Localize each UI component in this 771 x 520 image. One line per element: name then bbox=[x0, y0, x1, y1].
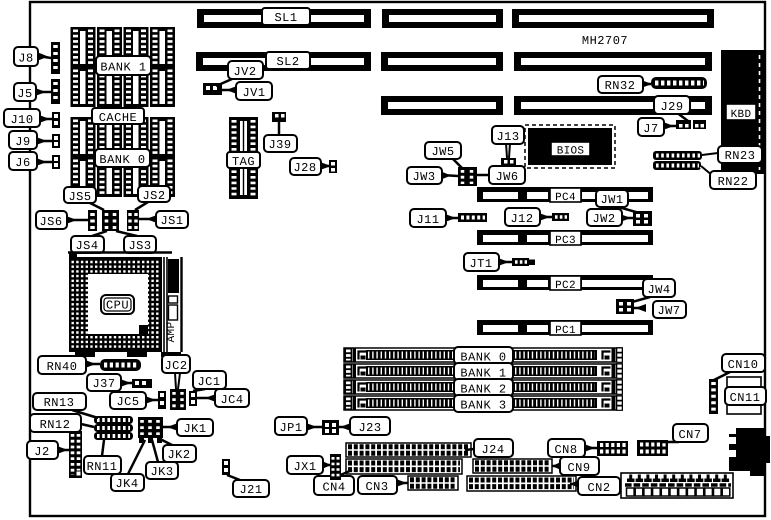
svg-text:J13: J13 bbox=[496, 130, 519, 144]
svg-text:J7: J7 bbox=[643, 122, 658, 136]
svg-text:BANK 1: BANK 1 bbox=[100, 61, 146, 75]
svg-text:JW2: JW2 bbox=[592, 212, 615, 226]
svg-text:JV2: JV2 bbox=[233, 65, 256, 79]
svg-text:J11: J11 bbox=[416, 213, 439, 227]
svg-text:KBD: KBD bbox=[731, 109, 752, 121]
svg-text:JX1: JX1 bbox=[293, 460, 316, 474]
svg-text:PC2: PC2 bbox=[555, 280, 576, 292]
svg-text:J24: J24 bbox=[481, 443, 504, 457]
svg-text:J10: J10 bbox=[10, 113, 33, 127]
svg-text:RN13: RN13 bbox=[44, 396, 75, 410]
svg-text:JK2: JK2 bbox=[167, 448, 190, 462]
svg-text:RN23: RN23 bbox=[725, 149, 756, 163]
svg-text:JW3: JW3 bbox=[412, 170, 435, 184]
svg-text:CN4: CN4 bbox=[322, 481, 345, 495]
svg-text:J2: J2 bbox=[34, 445, 49, 459]
svg-text:J39: J39 bbox=[268, 138, 291, 152]
svg-text:PC1: PC1 bbox=[555, 325, 576, 337]
svg-text:J9: J9 bbox=[15, 135, 30, 149]
svg-text:JK1: JK1 bbox=[183, 422, 206, 436]
svg-text:CN10: CN10 bbox=[728, 358, 759, 372]
svg-text:CN2: CN2 bbox=[587, 481, 610, 495]
svg-text:RN12: RN12 bbox=[40, 418, 71, 432]
svg-text:JV1: JV1 bbox=[242, 86, 265, 100]
svg-text:RN40: RN40 bbox=[47, 360, 78, 374]
svg-text:JS6: JS6 bbox=[39, 215, 62, 229]
svg-text:JW7: JW7 bbox=[657, 304, 680, 318]
svg-text:SL2: SL2 bbox=[276, 55, 299, 69]
svg-text:JP1: JP1 bbox=[279, 421, 302, 435]
svg-text:JC4: JC4 bbox=[220, 393, 243, 407]
svg-text:JW6: JW6 bbox=[495, 170, 518, 184]
svg-text:JS3: JS3 bbox=[128, 239, 151, 253]
svg-text:SL1: SL1 bbox=[274, 11, 297, 25]
svg-text:JS1: JS1 bbox=[160, 214, 183, 228]
svg-text:J29: J29 bbox=[660, 100, 683, 114]
svg-text:J23: J23 bbox=[358, 421, 381, 435]
svg-text:J21: J21 bbox=[239, 483, 262, 497]
svg-text:JC1: JC1 bbox=[197, 375, 220, 389]
svg-text:TAG: TAG bbox=[232, 155, 255, 169]
svg-text:JW1: JW1 bbox=[600, 193, 623, 207]
svg-text:JS2: JS2 bbox=[142, 189, 165, 203]
svg-text:J37: J37 bbox=[92, 377, 115, 391]
svg-text:CN3: CN3 bbox=[365, 480, 388, 494]
svg-text:JC5: JC5 bbox=[116, 395, 139, 409]
svg-text:CN9: CN9 bbox=[567, 461, 590, 475]
svg-text:CN7: CN7 bbox=[678, 428, 701, 442]
svg-text:JS5: JS5 bbox=[68, 190, 91, 204]
svg-text:AMP: AMP bbox=[166, 322, 178, 343]
svg-text:RN32: RN32 bbox=[605, 79, 636, 93]
svg-text:CN8: CN8 bbox=[554, 443, 577, 457]
svg-text:JK4: JK4 bbox=[115, 477, 138, 491]
svg-text:RN11: RN11 bbox=[87, 460, 118, 474]
svg-text:CACHE: CACHE bbox=[99, 111, 138, 125]
svg-text:JW5: JW5 bbox=[431, 145, 454, 159]
svg-text:BANK 3: BANK 3 bbox=[460, 399, 506, 413]
svg-text:J28: J28 bbox=[293, 161, 316, 175]
svg-text:CPU: CPU bbox=[106, 299, 129, 313]
svg-text:J8: J8 bbox=[18, 52, 33, 66]
svg-text:J6: J6 bbox=[15, 156, 30, 170]
svg-text:BIOS: BIOS bbox=[557, 146, 585, 158]
svg-text:MH2707: MH2707 bbox=[582, 34, 628, 48]
svg-text:JT1: JT1 bbox=[469, 257, 492, 271]
svg-text:CN11: CN11 bbox=[730, 391, 761, 405]
svg-text:JW4: JW4 bbox=[647, 283, 670, 297]
svg-text:J12: J12 bbox=[510, 212, 533, 226]
svg-text:J5: J5 bbox=[17, 87, 32, 101]
svg-text:JC2: JC2 bbox=[164, 359, 187, 373]
svg-text:BANK 0: BANK 0 bbox=[99, 153, 145, 167]
svg-text:RN22: RN22 bbox=[718, 175, 749, 189]
svg-text:JS4: JS4 bbox=[75, 239, 98, 253]
svg-text:PC4: PC4 bbox=[555, 192, 576, 204]
svg-text:PC3: PC3 bbox=[555, 235, 576, 247]
svg-text:JK3: JK3 bbox=[150, 465, 173, 479]
